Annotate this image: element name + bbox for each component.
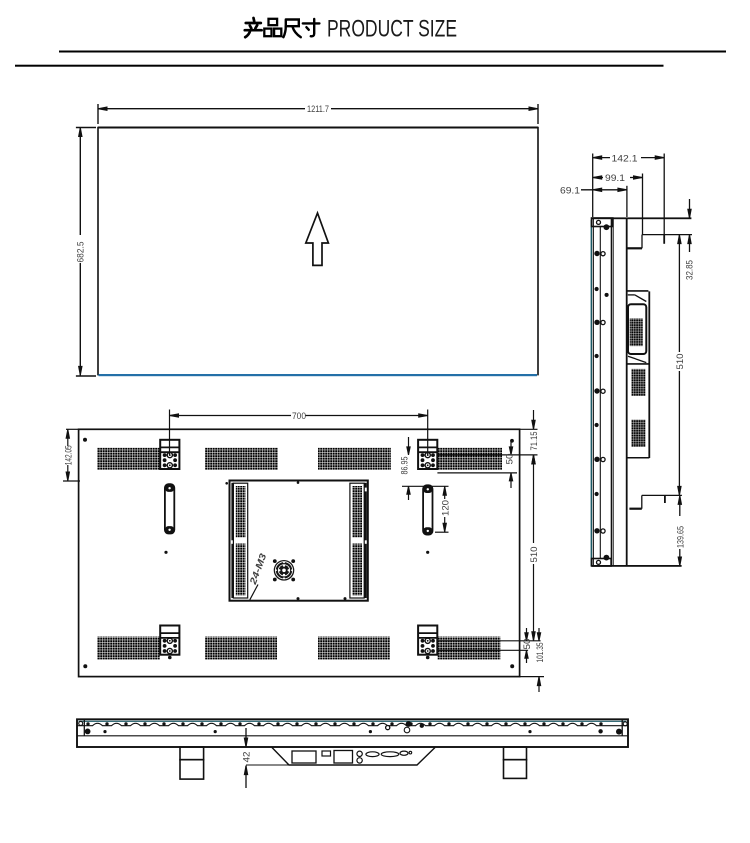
svg-text:120: 120 — [440, 500, 451, 516]
svg-text:101.35: 101.35 — [535, 643, 546, 663]
svg-text:71.15: 71.15 — [529, 432, 540, 451]
svg-text:69.1: 69.1 — [560, 186, 580, 197]
svg-text:50: 50 — [505, 454, 516, 465]
svg-text:142.05: 142.05 — [64, 445, 75, 465]
svg-text:50: 50 — [522, 639, 533, 650]
svg-text:142.1: 142.1 — [612, 153, 638, 164]
svg-text:700: 700 — [292, 411, 306, 422]
svg-text:PRODUCT SIZE: PRODUCT SIZE — [327, 16, 457, 43]
svg-text:1211.7: 1211.7 — [307, 104, 329, 115]
svg-text:510: 510 — [529, 547, 540, 563]
svg-text:682.5: 682.5 — [76, 242, 87, 263]
svg-text:510: 510 — [675, 354, 686, 370]
svg-text:86.95: 86.95 — [399, 457, 410, 475]
svg-text:139.65: 139.65 — [676, 526, 687, 548]
svg-text:32.85: 32.85 — [684, 260, 695, 280]
svg-text:42: 42 — [242, 752, 253, 763]
svg-text:99.1: 99.1 — [605, 173, 625, 184]
